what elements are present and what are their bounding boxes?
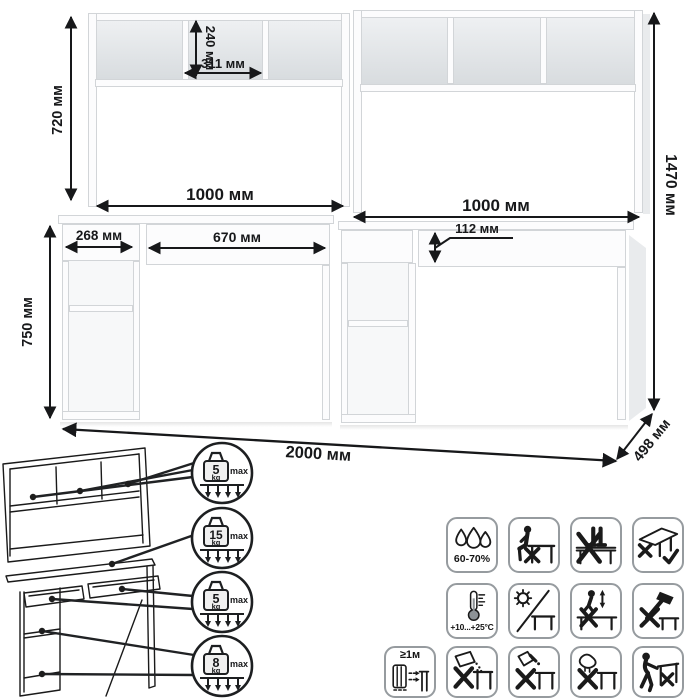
no-jumping-on-table-icon xyxy=(574,589,618,633)
right-hutch-cubby-back-1 xyxy=(362,18,447,84)
care-cell-move-disassembled xyxy=(632,517,684,573)
left-hutch-divider-1 xyxy=(182,20,189,80)
right-hutch-divider-1 xyxy=(447,17,454,84)
load-limits-sketch: 5 kg max 15 kg max 5 kg ma xyxy=(0,440,310,700)
right-hutch-top-board xyxy=(353,10,643,18)
care-cell-no-standing xyxy=(570,517,622,573)
dim-label-hutch-height: 720 мм xyxy=(50,85,66,135)
left-desk-wide-drawer xyxy=(146,224,330,265)
care-cell-no-jumping xyxy=(570,583,622,639)
right-desk-small-drawer xyxy=(341,230,413,263)
left-desk-cabinet-shelf xyxy=(69,305,133,312)
no-sitting-on-table-icon xyxy=(512,523,556,567)
left-hutch-left-upright xyxy=(88,13,97,207)
care-cell-no-sitting xyxy=(508,517,560,573)
load-value: 8 xyxy=(213,656,220,670)
load-note: max xyxy=(230,595,248,605)
care-cell-no-wet-cloth xyxy=(570,646,622,698)
left-desk-small-drawer xyxy=(62,224,140,261)
left-desk-floor-shadow xyxy=(60,422,332,427)
care-cell-no-sunlight xyxy=(508,583,560,639)
move-disassembled-icon xyxy=(636,523,680,567)
load-callout-drawers: 5 kg max xyxy=(192,572,252,632)
load-note: max xyxy=(230,531,248,541)
left-hutch-top-board xyxy=(88,13,350,21)
temperature-icon xyxy=(452,590,492,622)
care-cell-no-abrasives xyxy=(446,646,498,698)
left-desk-right-panel xyxy=(322,265,330,420)
load-note: max xyxy=(230,466,248,476)
humidity-icon xyxy=(452,526,492,553)
no-dragging-icon xyxy=(636,650,680,694)
load-value: 15 xyxy=(209,528,223,542)
care-cell-temperature: +10...+25°C xyxy=(446,583,498,639)
load-callout-hutch-shelves: 5 kg max xyxy=(192,443,252,503)
right-hutch-cubby-back-3 xyxy=(547,18,634,84)
load-unit: kg xyxy=(212,538,221,547)
right-hutch-divider-2 xyxy=(540,17,547,84)
care-cell-radiator-distance: ≥1м xyxy=(384,646,436,698)
right-hutch-right-upright xyxy=(634,10,643,213)
right-desk-right-panel xyxy=(617,267,626,420)
dim-label-left-desk-width: 1000 мм xyxy=(186,185,254,204)
temperature-label: +10...+25°C xyxy=(450,623,493,632)
callout-leader-lines xyxy=(33,463,195,675)
right-desk-floor-shadow xyxy=(340,425,628,430)
load-value: 5 xyxy=(213,463,220,477)
left-desk-cabinet-interior xyxy=(69,261,133,411)
humidity-label: 60-70% xyxy=(454,554,490,565)
right-desktop xyxy=(338,221,634,230)
care-cell-humidity: 60-70% xyxy=(446,517,498,573)
right-hutch-cubby-back-2 xyxy=(454,18,540,84)
right-desk-cabinet-interior xyxy=(348,263,408,414)
dim-label-right-desk-width: 1000 мм xyxy=(462,196,530,215)
dim-label-total-width: 2000 мм xyxy=(285,443,352,465)
right-hutch-left-upright xyxy=(353,10,362,213)
dim-line-total-width xyxy=(63,429,616,461)
load-unit: kg xyxy=(212,602,221,611)
left-hutch-divider-2 xyxy=(262,20,269,80)
left-hutch-shelf xyxy=(95,79,343,87)
load-note: max xyxy=(230,659,248,669)
dim-label-desk-height: 750 мм xyxy=(20,297,36,347)
left-hutch-cubby-back-2 xyxy=(189,21,262,79)
right-hutch-side-panel-depth xyxy=(643,14,650,214)
right-desk-cabinet-bottom xyxy=(341,414,416,423)
left-desk-cabinet-left-side xyxy=(62,261,69,419)
right-desk-side-panel-depth xyxy=(629,235,646,421)
no-direct-sunlight-icon xyxy=(512,589,556,633)
right-hutch-shelf xyxy=(360,84,636,92)
callout-anchor-dots xyxy=(30,481,131,677)
sketch-desk-drawing xyxy=(3,448,160,696)
product-dimension-diagram: 720 мм 240 мм 311 мм 1000 мм 1000 мм 147… xyxy=(0,0,700,700)
radiator-distance-label: ≥1м xyxy=(400,650,420,661)
no-wet-cloth-icon xyxy=(574,650,618,694)
left-hutch-cubby-back-1 xyxy=(97,21,182,79)
dim-line-depth xyxy=(617,414,652,459)
load-unit: kg xyxy=(212,473,221,482)
left-hutch-cubby-back-3 xyxy=(269,21,341,79)
care-cell-no-solvents xyxy=(508,646,560,698)
load-value: 5 xyxy=(213,592,220,606)
load-callout-desktop: 15 kg max xyxy=(192,508,252,568)
right-desk-cabinet-right-side xyxy=(408,263,416,423)
no-solvents-icon xyxy=(512,650,556,694)
radiator-distance-icon xyxy=(389,662,431,694)
left-hutch-right-upright xyxy=(341,13,350,207)
no-abrasive-cleaners-icon xyxy=(450,650,494,694)
left-desk-cabinet-bottom xyxy=(62,411,140,420)
left-desk-cabinet-right-side xyxy=(133,261,140,419)
right-desk-wide-drawer xyxy=(418,230,626,267)
care-cell-no-dragging xyxy=(632,646,684,698)
dim-label-depth: 498 мм xyxy=(630,416,674,465)
care-cell-no-hammering xyxy=(632,583,684,639)
dim-label-total-height: 1470 мм xyxy=(662,154,679,216)
no-standing-on-table-icon xyxy=(574,523,618,567)
load-unit: kg xyxy=(212,666,221,675)
right-desk-cabinet-shelf xyxy=(348,320,408,327)
no-hammering-icon xyxy=(636,589,680,633)
right-desk-cabinet-left-side xyxy=(341,263,348,423)
load-callout-side-shelves: 8 kg max xyxy=(192,636,252,696)
left-desktop xyxy=(58,215,334,224)
